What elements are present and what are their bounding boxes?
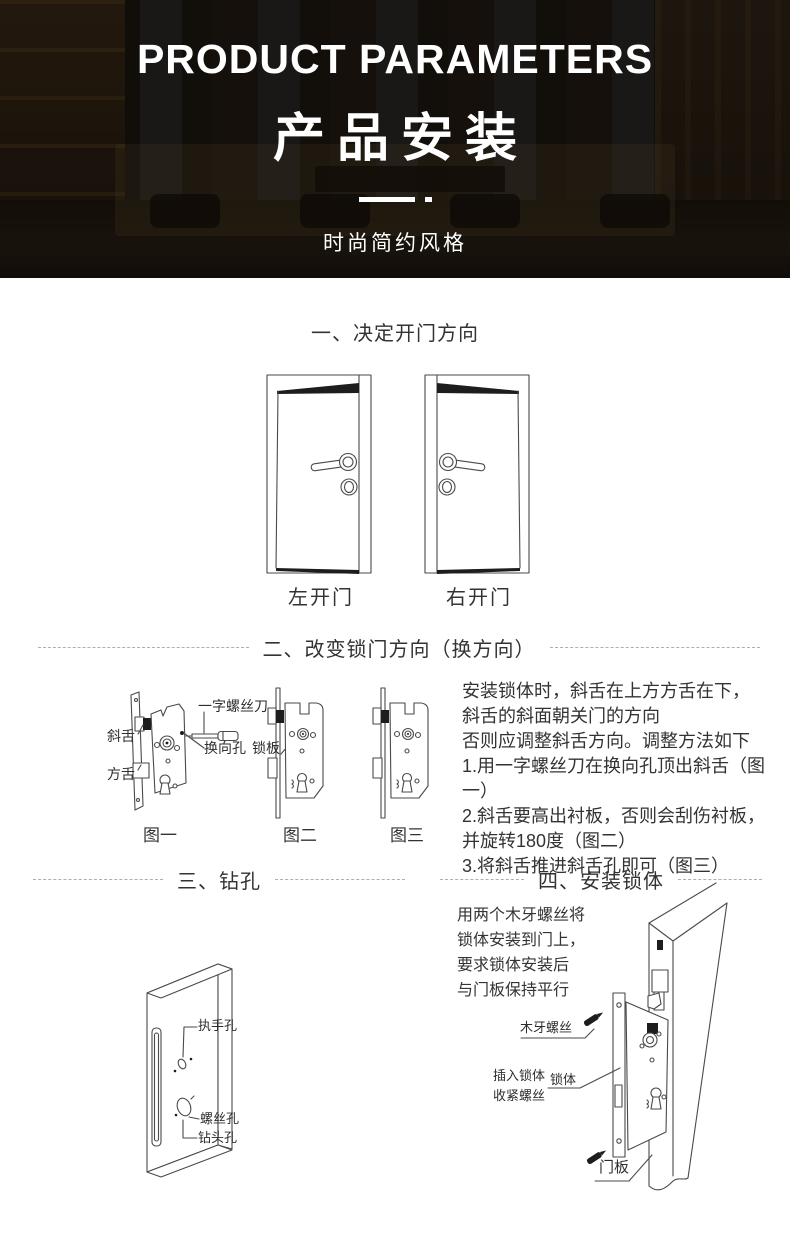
instruction-line: 2.斜舌要高出衬板，否则会刮伤衬板， (462, 804, 790, 829)
lock-body-illustration (626, 993, 668, 1150)
insert-lock-label: 插入锁体 (493, 1069, 545, 1084)
lock-install-diagram (480, 888, 790, 1244)
instruction-line: 并旋转180度（图二） (462, 829, 790, 854)
left-door-illustration (266, 374, 372, 574)
drilling-diagram (120, 950, 320, 1212)
latch-label: 斜舌 (107, 728, 135, 744)
instruction-line: 安装锁体时，斜舌在上方方舌在下， (462, 679, 790, 704)
reversing-hole-label: 换向孔 (204, 740, 246, 756)
screwdriver-label: 一字螺丝刀 (198, 698, 268, 714)
lock-plate-label: 锁板 (252, 740, 280, 756)
hero-title-en: PRODUCT PARAMETERS (0, 36, 790, 83)
tighten-screw-label: 收紧螺丝 (493, 1089, 545, 1104)
hero-divider (0, 197, 790, 202)
faceplate-slot (152, 1028, 161, 1146)
hero-subtitle: 时尚简约风格 (0, 227, 790, 257)
dashed-rule (440, 879, 524, 880)
lock-body-label: 锁体 (550, 1073, 576, 1088)
door-panel-label: 门板 (599, 1159, 629, 1176)
wood-screw-icon (583, 1010, 605, 1027)
right-door-illustration (424, 374, 530, 574)
section2-heading-row: 二、改变锁门方向（换方向） (38, 633, 760, 662)
faceplate-strip (613, 993, 625, 1157)
section2-instructions: 安装锁体时，斜舌在上方方舌在下， 斜舌的斜面朝关门的方向 否则应调整斜舌方向。调… (462, 679, 790, 879)
product-install-page: PRODUCT PARAMETERS 产品安装 时尚简约风格 一、决定开门方向 … (0, 0, 790, 1244)
section3-heading-row: 三、钻孔 (33, 865, 405, 894)
handle-hole-label: 执手孔 (198, 1019, 237, 1034)
instruction-line: 否则应调整斜舌方向。调整方法如下 (462, 729, 790, 754)
screw-hole-label: 螺丝孔 (200, 1112, 239, 1127)
figure3-caption: 图三 (377, 821, 437, 846)
hero-title-cn: 产品安装 (0, 96, 790, 171)
hero-banner: PRODUCT PARAMETERS 产品安装 时尚简约风格 (0, 0, 790, 278)
figure2-caption: 图二 (270, 821, 330, 846)
dashed-rule (550, 647, 761, 648)
dashed-rule (38, 647, 249, 648)
section1-heading: 一、决定开门方向 (0, 317, 790, 346)
left-door-label: 左开门 (266, 581, 376, 610)
section2-heading: 二、改变锁门方向（换方向） (263, 633, 536, 662)
dashed-rule (33, 879, 163, 880)
lock-figure-3 (373, 688, 428, 818)
dashed-rule (275, 879, 405, 880)
right-door-label: 右开门 (424, 581, 534, 610)
mortise-hole (652, 970, 668, 992)
figure1-caption: 图一 (130, 821, 190, 846)
latch-bolt (647, 1023, 658, 1034)
instruction-line: 1.用一字螺丝刀在换向孔顶出斜舌（图一） (462, 754, 790, 804)
drill-hole-label: 钻头孔 (198, 1131, 237, 1146)
deadbolt-label: 方舌 (107, 766, 135, 782)
wood-screw-label: 木牙螺丝 (520, 1021, 572, 1036)
section3-heading: 三、钻孔 (177, 865, 261, 894)
dashed-rule (678, 879, 762, 880)
reversing-hole (180, 731, 184, 735)
instruction-line: 斜舌的斜面朝关门的方向 (462, 704, 790, 729)
